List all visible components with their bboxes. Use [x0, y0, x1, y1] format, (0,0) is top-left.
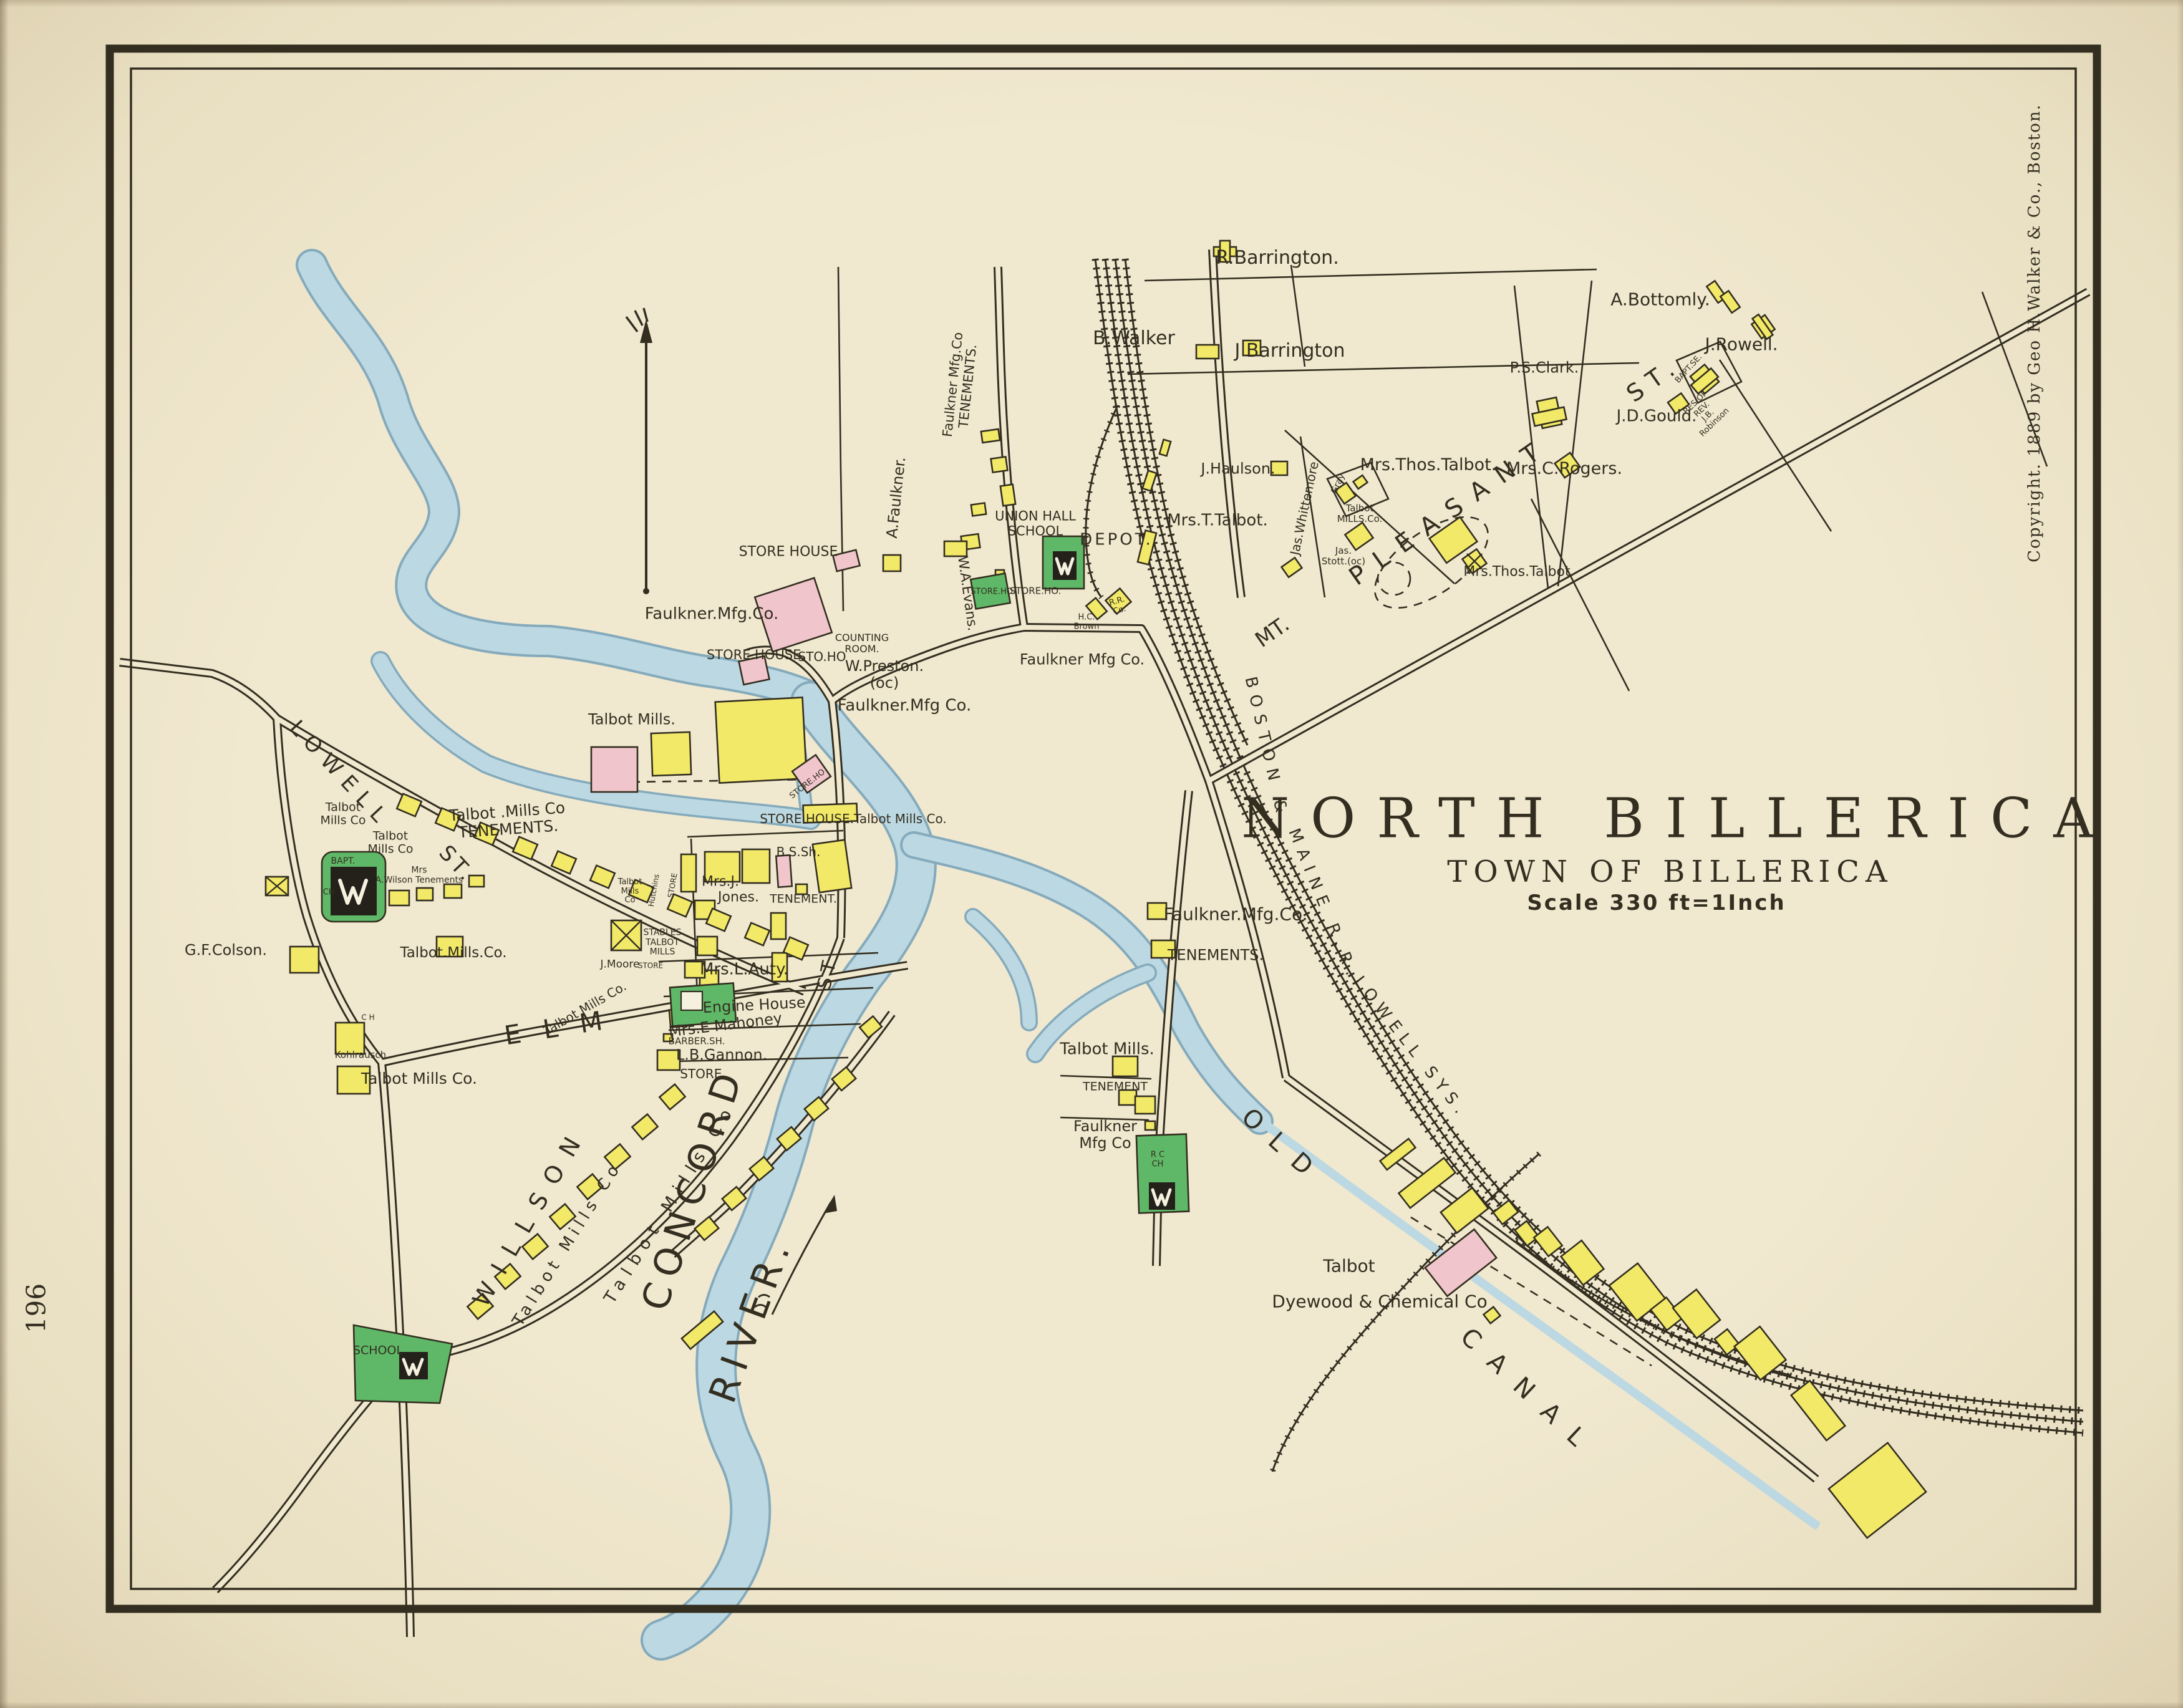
label-talbot-mills-r: Talbot Mills.: [1060, 1040, 1154, 1058]
page-number: 196: [21, 1283, 52, 1333]
label-store-ho-2: STORE.HO.: [1010, 586, 1061, 597]
label-faulkner-mfg-5: Faulkner Mfg Co: [1073, 1118, 1137, 1152]
label-b-walker: B.Walker: [1093, 328, 1175, 349]
label-talbot-mills-b: Talbot Mills Co: [367, 830, 413, 857]
label-mrs-l-auty: Mrs.L.Auty.: [700, 960, 788, 978]
label-bs-sh: B.S.Sh.: [777, 845, 821, 859]
label-talbot-mills-parcel: Talbot MILLS.Co.: [1337, 503, 1383, 524]
label-store-moore: STORE: [638, 962, 663, 970]
label-hc-brown: H.C. Brown: [1074, 613, 1100, 631]
label-school: SCHOOL: [353, 1344, 403, 1357]
label-counting-room: COUNTING ROOM.: [835, 632, 889, 655]
label-mrs-j: Mrs.J.: [702, 875, 739, 890]
label-faulkner-mfg-1: Faulkner.Mfg.Co.: [645, 605, 779, 623]
label-rc-ch: R C CH: [1151, 1151, 1164, 1169]
label-store-house-talbot: STORE HOUSE.Talbot Mills Co.: [760, 812, 946, 826]
label-faulkner-mfg-3: Faulkner Mfg Co.: [1020, 652, 1145, 668]
label-bapt-ch: CH: [323, 889, 335, 898]
compass-north-arrow: [626, 308, 652, 594]
map-scale: Scale 330 ft=1Inch: [1527, 890, 1786, 915]
label-faulkner-mfg-2: Faulkner.Mfg Co.: [838, 697, 972, 715]
label-stables: STABLES TALBOT MILLS: [643, 928, 681, 957]
label-store-house-top: STORE HOUSE: [739, 545, 838, 561]
label-jones: Jones.: [718, 890, 759, 906]
label-j-moore: J.Moore: [601, 958, 640, 970]
label-bapt: BAPT.: [331, 857, 356, 867]
label-talbot-mills-center: Talbot Mills.: [588, 712, 675, 728]
map-subtitle: TOWN OF BILLERICA: [1447, 854, 1893, 889]
label-ps-clark: P.S.Clark.: [1510, 360, 1579, 377]
label-talbot-mills-d: Talbot.Mills.Co.: [400, 945, 506, 962]
label-lb-gannon: L.B.Gannon.: [676, 1047, 767, 1064]
label-mrs-t-talbot: Mrs.T.Talbot.: [1167, 511, 1268, 529]
label-a-bottomly: A.Bottomly.: [1610, 289, 1710, 309]
label-mrs-wilson: Mrs A.Wilson Tenements: [375, 866, 463, 885]
label-store-house-dam: STORE.HOUSE.: [707, 648, 805, 663]
label-kohlrausch-ch: C H: [361, 1013, 374, 1021]
label-talbot-mills-tiny: Talbot Mills Co: [618, 878, 642, 905]
old-canal-water: [1259, 1119, 1818, 1527]
label-mrs-thos-talbot-2: Mrs.Thos.Talbot: [1463, 565, 1570, 581]
label-union-hall-school: UNION HALL SCHOOL: [995, 509, 1076, 538]
buildings-yellow: [266, 241, 1926, 1538]
label-j-barrington: J Barrington: [1234, 340, 1345, 362]
label-store-ho-green: STORE.HO.: [970, 588, 1015, 597]
map-title: NORTH BILLERICA: [1241, 786, 2114, 851]
label-talbot-mills-a: Talbot Mills Co: [320, 801, 365, 828]
copyright-notice: Copyright. 1889 by Geo H.Walker & Co., B…: [2025, 104, 2044, 562]
label-tenement-r: TENEMENT: [1083, 1080, 1148, 1093]
label-depot: DEPOT.: [1080, 531, 1153, 549]
label-r-barrington: R.Barrington.: [1216, 248, 1338, 269]
label-j-haulson: J.Haulson.: [1201, 461, 1275, 478]
label-tenement-jones: TENEMENT.: [770, 892, 837, 905]
label-faulkner-mfg-4: Faulkner.Mfg.Co.: [1163, 904, 1307, 924]
label-mrs-thos-talbot-1: Mrs.Thos.Talbot.: [1360, 456, 1497, 475]
label-barber: BARBER.SH.: [669, 1036, 725, 1047]
label-kohlrausch: Kohlrausch: [335, 1050, 386, 1061]
atlas-page: R.Barrington.B.WalkerJ BarringtonJ.Hauls…: [0, 0, 2183, 1708]
label-dyewood-1: Talbot: [1323, 1256, 1375, 1275]
label-dyewood-2: Dyewood & Chemical Co: [1272, 1291, 1487, 1311]
label-w-preston: W.Preston. (oc): [845, 658, 924, 692]
label-talbot-mills-c: Talbot Mills Co.: [361, 1070, 477, 1088]
label-tenements-r: TENEMENTS.: [1168, 947, 1264, 964]
label-gf-colson: G.F.Colson.: [185, 942, 267, 959]
label-j-rowell: J.Rowell.: [1705, 334, 1778, 354]
